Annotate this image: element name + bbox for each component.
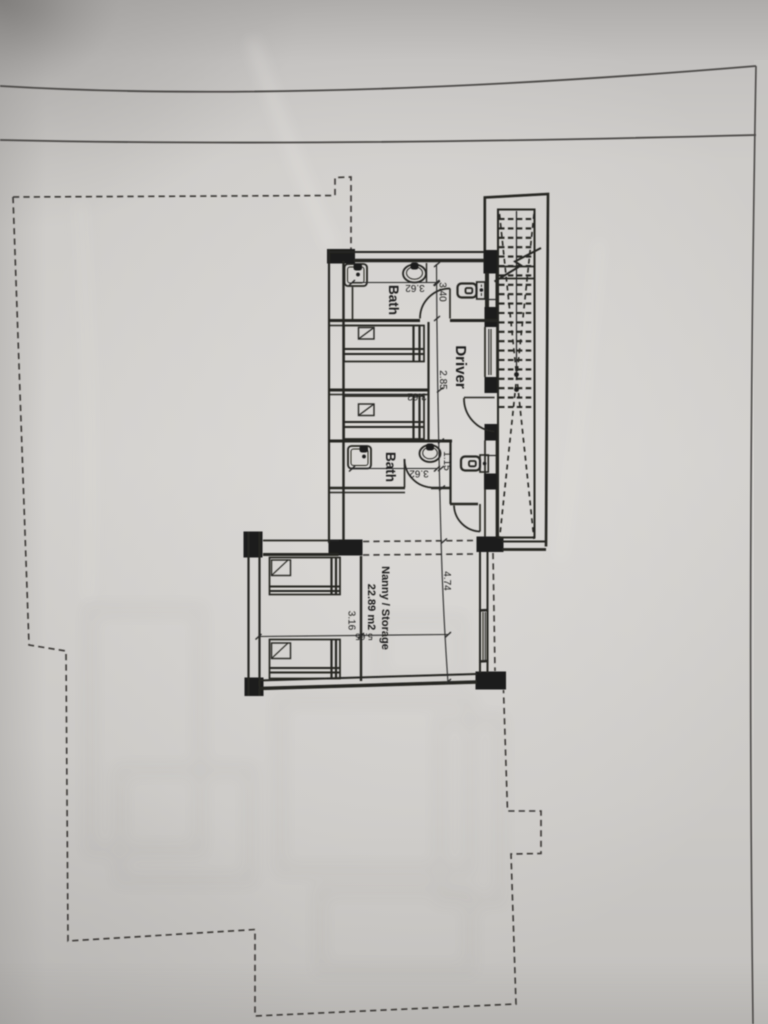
svg-text:5.65: 5.65 <box>355 631 373 641</box>
svg-text:2.85: 2.85 <box>437 370 448 390</box>
svg-text:3.62: 3.62 <box>407 391 427 402</box>
svg-text:Bath: Bath <box>383 452 398 482</box>
svg-text:3.40: 3.40 <box>437 282 448 302</box>
svg-text:Bath: Bath <box>386 285 401 315</box>
svg-text:3.62: 3.62 <box>405 282 425 293</box>
svg-text:22.89 m2: 22.89 m2 <box>365 584 377 630</box>
svg-text:4.74: 4.74 <box>441 571 452 591</box>
svg-text:1.15: 1.15 <box>441 451 452 471</box>
svg-text:Driver: Driver <box>452 345 469 389</box>
svg-text:Nanny / Storage: Nanny / Storage <box>379 566 391 650</box>
svg-text:3.62: 3.62 <box>409 468 429 479</box>
svg-text:3.16: 3.16 <box>346 611 357 631</box>
